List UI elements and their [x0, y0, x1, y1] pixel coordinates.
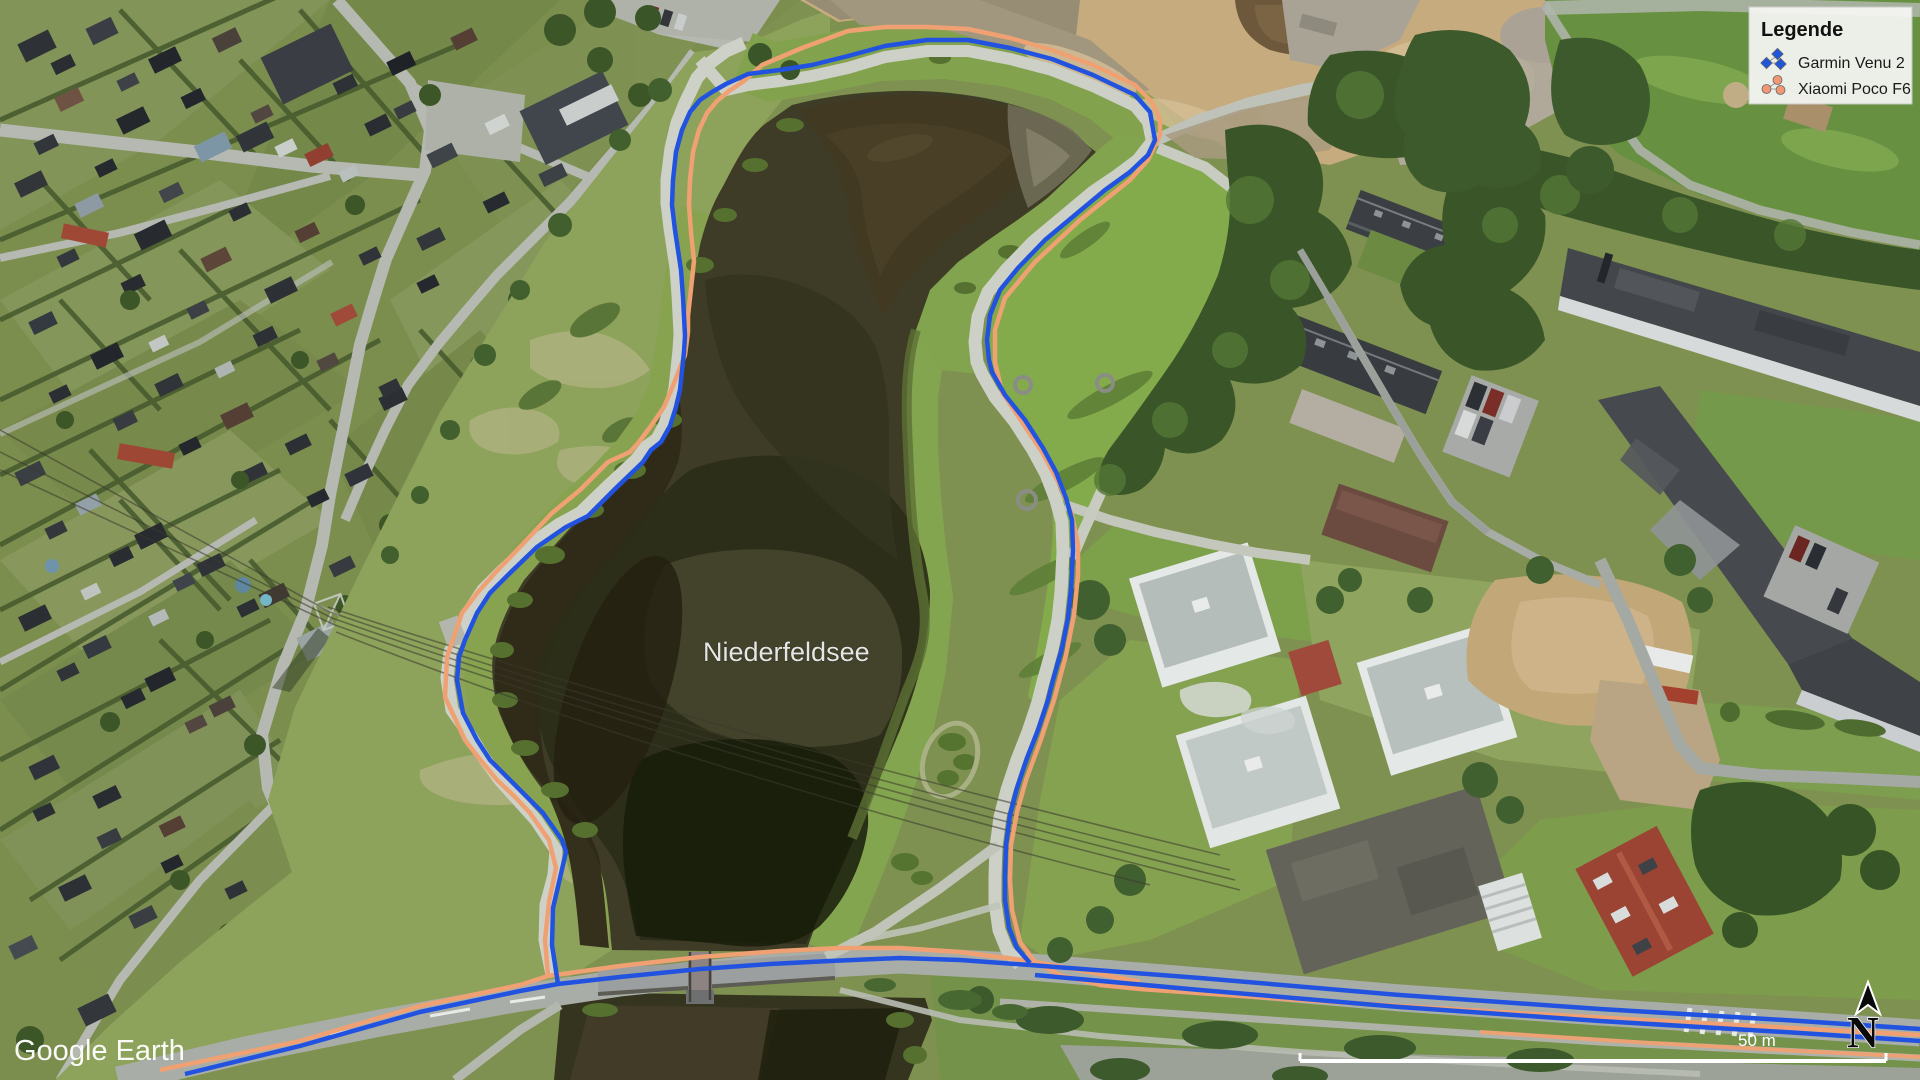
svg-text:Google Earth: Google Earth [14, 1035, 185, 1067]
svg-text:50 m: 50 m [1738, 1031, 1776, 1050]
svg-text:Xiaomi Poco F6: Xiaomi Poco F6 [1798, 81, 1911, 98]
svg-text:N: N [1847, 1008, 1879, 1057]
svg-text:Legende: Legende [1761, 19, 1843, 41]
svg-text:Niederfeldsee: Niederfeldsee [703, 637, 870, 667]
svg-text:Garmin Venu 2: Garmin Venu 2 [1798, 55, 1905, 72]
